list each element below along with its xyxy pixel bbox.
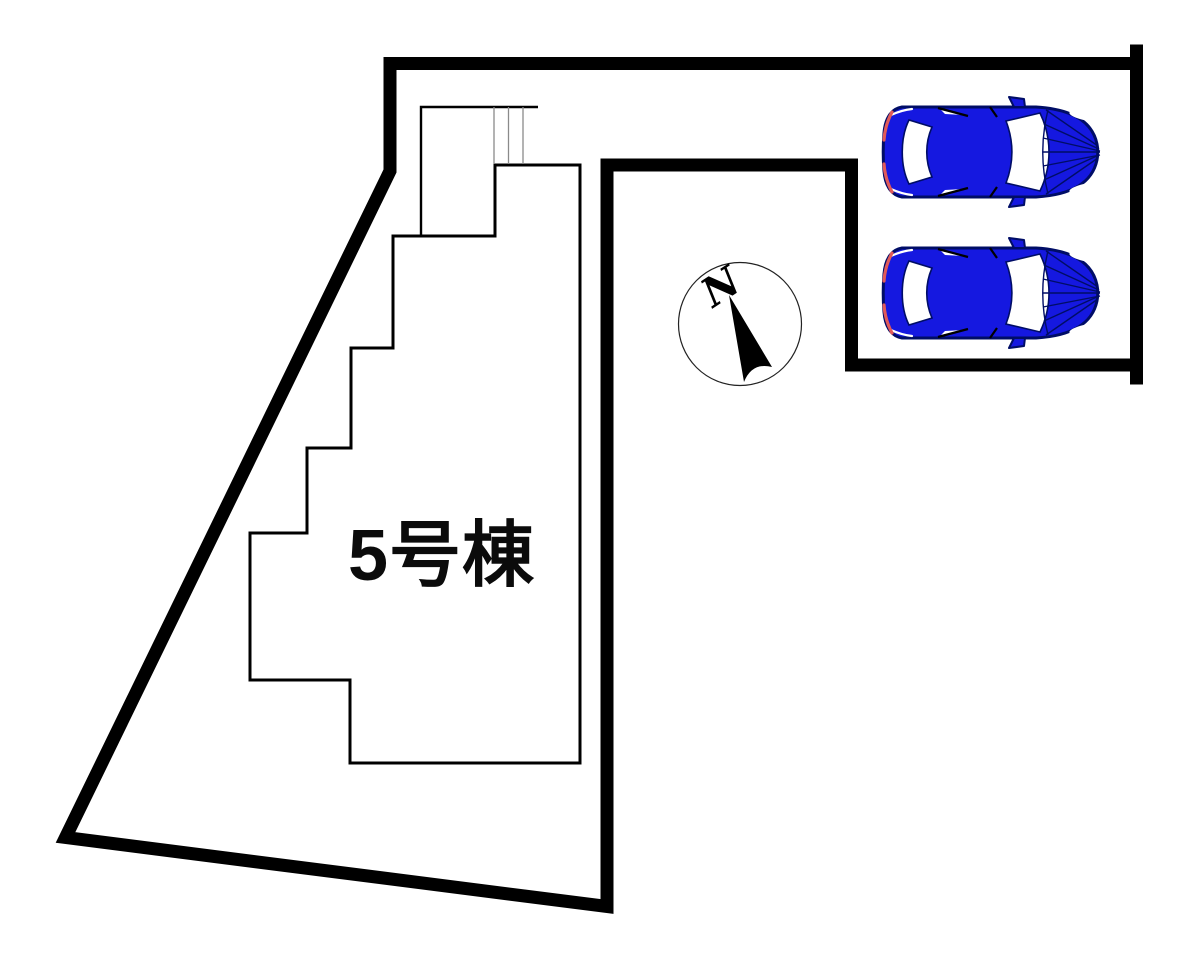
building-label: 5号棟	[348, 520, 535, 592]
building-outline	[250, 165, 580, 763]
site-plan-drawing: N	[0, 0, 1199, 960]
entrance-steps	[494, 107, 523, 164]
car-icon	[883, 97, 1100, 207]
compass: N	[679, 257, 802, 386]
site-plan: N 5号棟	[0, 0, 1199, 960]
parking-area	[883, 97, 1100, 348]
car-icon	[883, 238, 1100, 348]
